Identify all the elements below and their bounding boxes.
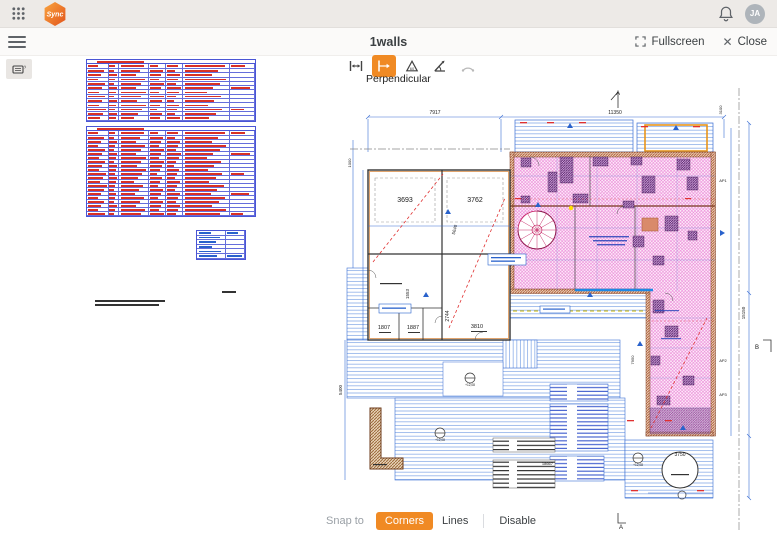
table-cell [230,196,255,199]
dim-label: +12,08 [465,383,475,387]
table-cell [183,156,230,159]
dim-label: 7950 [630,355,635,365]
table-cell [197,249,226,253]
table-row [87,212,255,216]
table-cell [119,64,149,68]
table-cell [149,116,166,119]
table-cell [119,192,149,195]
snap-options: CornersLinesDisable [376,512,545,530]
table-cell [109,78,119,81]
snap-bar: Snap to CornersLinesDisable [326,511,545,531]
table-cell [87,148,109,151]
table-cell [87,86,109,89]
table-cell [119,112,149,115]
table-cell [230,116,255,119]
table-cell [166,82,183,85]
table-cell [109,90,119,93]
table-cell [166,148,183,151]
fireplace-block [642,218,658,231]
table-cell [119,188,149,191]
table-cell [149,108,166,111]
table-row [87,116,255,120]
table-cell [87,172,109,175]
table-cell [183,184,230,187]
table-cell [166,73,183,76]
angle-icon [432,58,448,74]
dim-label: 18667 [542,461,554,466]
table-cell [183,64,230,68]
table-cell [119,196,149,199]
table-cell [149,86,166,89]
table-cell [183,69,230,72]
table-cell [230,176,255,179]
table-cell [109,180,119,183]
table-cell [230,99,255,102]
table-cell [87,64,109,68]
table-cell [183,144,230,147]
svg-text:60: 60 [410,66,415,71]
table-cell [149,184,166,187]
table-cell [119,204,149,207]
perpendicular-icon [376,58,392,74]
door-schedule [86,126,256,217]
dim-label: AP3 [719,392,727,397]
table-cell [119,90,149,93]
table-cell [230,144,255,147]
dim-label: 5400 [338,384,343,395]
app-root: Sync JA 1walls Fullscreen ✕ Close [0,0,777,538]
table-cell [166,196,183,199]
table-cell [183,86,230,89]
table-cell [183,192,230,195]
table-cell [119,136,149,139]
table-cell [166,64,183,68]
table-cell [109,160,119,163]
table-cell [109,152,119,155]
table-cell [166,90,183,93]
table-cell [149,164,166,167]
table-cell [119,140,149,143]
table-cell [149,140,166,143]
close-label: Close [738,36,767,48]
table-cell [109,112,119,115]
sync-logo-icon[interactable]: Sync [42,1,68,27]
table-cell [230,95,255,98]
table-cell [87,208,109,211]
table-cell [109,140,119,143]
table-cell [87,112,109,115]
table-cell [87,78,109,81]
table-cell [183,176,230,179]
snap-option-corners[interactable]: Corners [376,512,433,530]
table-cell [183,108,230,111]
note-text-line [95,300,165,302]
fullscreen-icon [635,36,646,47]
snap-option-lines[interactable]: Lines [433,512,477,530]
dim-label: 2744 [445,310,451,321]
dim-label: 11350 [608,110,622,116]
table-cell [149,152,166,155]
table-cell [183,95,230,98]
table-cell [197,254,226,258]
table-cell [149,168,166,171]
table-cell [183,208,230,211]
table-cell [183,103,230,106]
table-cell [230,172,255,175]
table-cell [230,103,255,106]
menu-hamburger-icon[interactable] [8,36,26,48]
table-cell [166,192,183,195]
table-cell [119,148,149,151]
table-cell [149,212,166,215]
table-cell [230,212,255,215]
table-cell [119,69,149,72]
table-cell [166,103,183,106]
table-cell [149,73,166,76]
table-cell [119,164,149,167]
table-cell [230,188,255,191]
table-cell [166,99,183,102]
table-cell [226,231,245,235]
table-cell [87,176,109,179]
table-cell [183,160,230,163]
table-cell [166,160,183,163]
dim-label: 1887 [407,325,419,331]
table-cell [166,212,183,215]
table-cell [119,152,149,155]
distance-icon [348,58,364,74]
table-cell [87,108,109,111]
selected-tool-label: Perpendicular [366,73,431,85]
table-cell [87,69,109,72]
table-cell [230,69,255,72]
table-cell [166,176,183,179]
dim-label: B [755,345,759,351]
table-cell [149,64,166,68]
layers-toggle-button[interactable]: y [6,59,32,79]
table-cell [166,69,183,72]
table-cell [109,95,119,98]
dim-label: 1000 [347,158,352,168]
table-cell [109,103,119,106]
table-cell [149,136,166,139]
table-cell [109,196,119,199]
table-cell [119,108,149,111]
table-cell [119,131,149,135]
table-cell [183,90,230,93]
tool-distance-button[interactable] [344,55,368,77]
close-icon: ✕ [723,35,733,49]
table-cell [149,208,166,211]
table-cell [226,254,245,258]
dim-label: 3750 [674,452,685,458]
dim-label: 3100 [718,105,723,115]
table-cell [119,116,149,119]
table-cell [149,95,166,98]
table-cell [149,69,166,72]
table-cell [109,212,119,215]
table-cell [183,204,230,207]
table-cell [197,231,226,235]
table-cell [166,184,183,187]
table-cell [87,160,109,163]
table-cell [230,180,255,183]
table-cell [87,82,109,85]
table-cell [87,156,109,159]
table-cell [119,180,149,183]
table-cell [183,78,230,81]
table-cell [197,236,226,240]
spiral-staircase [518,211,556,249]
notifications-bell-icon[interactable] [717,5,735,23]
table-cell [119,78,149,81]
table-cell [230,108,255,111]
table-cell [149,90,166,93]
table-cell [230,168,255,171]
table-cell [166,131,183,135]
grid-icon [11,6,26,21]
table-cell [230,208,255,211]
dim-label: +12,08 [633,463,643,467]
table-cell [230,164,255,167]
table-cell [230,192,255,195]
table-cell [109,116,119,119]
dim-label: AP1 [719,178,727,183]
table-cell [149,82,166,85]
view-header: 1walls Fullscreen ✕ Close [0,28,777,56]
table-cell [87,140,109,143]
table-cell [119,168,149,171]
table-cell [119,82,149,85]
table-cell [183,164,230,167]
table-cell [183,180,230,183]
snap-divider [483,514,484,528]
table-cell [109,200,119,203]
table-cell [109,82,119,85]
table-cell [166,144,183,147]
table-cell [87,168,109,171]
table-cell [230,184,255,187]
fullscreen-button[interactable]: Fullscreen [635,36,704,48]
table-cell [230,140,255,143]
table-cell [87,204,109,207]
logo-text: Sync [47,11,64,18]
table-cell [109,184,119,187]
table-cell [109,172,119,175]
table-cell [183,188,230,191]
table-cell [166,140,183,143]
table-cell [119,208,149,211]
table-cell [149,196,166,199]
table-cell [109,86,119,89]
table-cell [149,172,166,175]
table-cell [109,156,119,159]
table-cell [109,136,119,139]
table-cell [230,156,255,159]
table-cell [87,200,109,203]
table-cell [109,69,119,72]
table-cell [230,152,255,155]
table-cell [230,64,255,68]
dim-label: 7917 [429,110,440,116]
table-cell [149,192,166,195]
app-bar: Sync JA [0,0,777,28]
table-cell [109,208,119,211]
table-cell [149,180,166,183]
table-cell [197,245,226,249]
table-cell [183,73,230,76]
table-cell [149,176,166,179]
dim-label: AP2 [719,358,727,363]
table-cell [149,103,166,106]
table-cell [166,152,183,155]
table-cell [230,82,255,85]
table-cell [166,188,183,191]
table-cell [119,103,149,106]
dim-label: 3810 [471,324,483,330]
table-cell [149,148,166,151]
app-launcher-grid-icon[interactable] [8,4,28,24]
table-cell [87,164,109,167]
table-cell [109,99,119,102]
table-cell [197,240,226,244]
table-cell [87,116,109,119]
table-cell [119,95,149,98]
table-cell [230,86,255,89]
table-cell [230,200,255,203]
info-table [196,230,246,260]
table-cell [109,108,119,111]
note-text-line [95,304,159,306]
table-cell [109,164,119,167]
floorplan-svg[interactable]: 791711350AABAP1AP2AP33693376218071887381… [335,78,775,535]
snap-option-disable[interactable]: Disable [490,512,545,530]
table-cell [109,176,119,179]
note-text-line [222,291,236,293]
table-cell [119,212,149,215]
table-cell [166,156,183,159]
close-button[interactable]: ✕ Close [723,35,767,49]
snap-to-label: Snap to [326,515,364,527]
table-cell [119,176,149,179]
table-cell [109,204,119,207]
table-cell [119,172,149,175]
triangle-angle-icon: 60 [404,58,420,74]
table-cell [166,168,183,171]
table-cell [119,99,149,102]
tool-angle-button[interactable] [428,55,452,77]
svg-text:y: y [24,64,26,69]
table-cell [226,240,245,244]
table-cell [119,184,149,187]
table-cell [230,148,255,151]
dim-label: 3762 [467,197,483,204]
table-cell [183,112,230,115]
table-cell [230,90,255,93]
table-cell [149,160,166,163]
table-cell [230,78,255,81]
table-cell [149,112,166,115]
fullscreen-label: Fullscreen [651,36,704,48]
table-cell [109,131,119,135]
sheet-icon: y [12,64,26,75]
dim-label: +12,08 [435,438,445,442]
highlight-dot [569,206,573,210]
table-row [197,254,245,259]
table-cell [183,212,230,215]
dim-label: 15150 [741,306,746,319]
table-cell [109,188,119,191]
table-cell [166,95,183,98]
table-cell [226,245,245,249]
table-cell [166,208,183,211]
table-cell [149,99,166,102]
table-cell [87,180,109,183]
table-cell [183,200,230,203]
table-cell [183,136,230,139]
table-cell [226,249,245,253]
table-cell [119,156,149,159]
table-cell [166,204,183,207]
table-cell [109,64,119,68]
table-cell [166,86,183,89]
dim-label: A [619,525,623,531]
table-cell [149,131,166,135]
table-cell [119,200,149,203]
table-cell [87,196,109,199]
table-cell [183,168,230,171]
table-cell [109,144,119,147]
table-cell [166,180,183,183]
window-schedule [86,59,256,122]
table-cell [149,156,166,159]
table-cell [109,148,119,151]
table-cell [166,108,183,111]
table-cell [166,112,183,115]
table-cell [166,78,183,81]
tool-arc-button[interactable] [456,55,480,77]
arc-icon [460,58,476,74]
table-cell [87,144,109,147]
table-cell [183,82,230,85]
table-cell [119,144,149,147]
dim-label: 1807 [378,325,390,331]
dim-label: 1553 [405,288,410,299]
table-cell [230,204,255,207]
user-avatar[interactable]: JA [745,4,765,24]
table-cell [149,144,166,147]
dim-label: A [616,91,620,97]
table-cell [87,188,109,191]
table-cell [87,152,109,155]
table-cell [87,192,109,195]
table-cell [87,103,109,106]
table-cell [109,73,119,76]
table-cell [149,204,166,207]
table-cell [183,99,230,102]
table-cell [230,131,255,135]
table-cell [166,164,183,167]
table-cell [119,86,149,89]
table-cell [230,73,255,76]
table-cell [87,95,109,98]
table-cell [166,136,183,139]
table-cell [183,148,230,151]
table-cell [149,78,166,81]
table-cell [87,90,109,93]
table-cell [183,131,230,135]
table-cell [230,136,255,139]
